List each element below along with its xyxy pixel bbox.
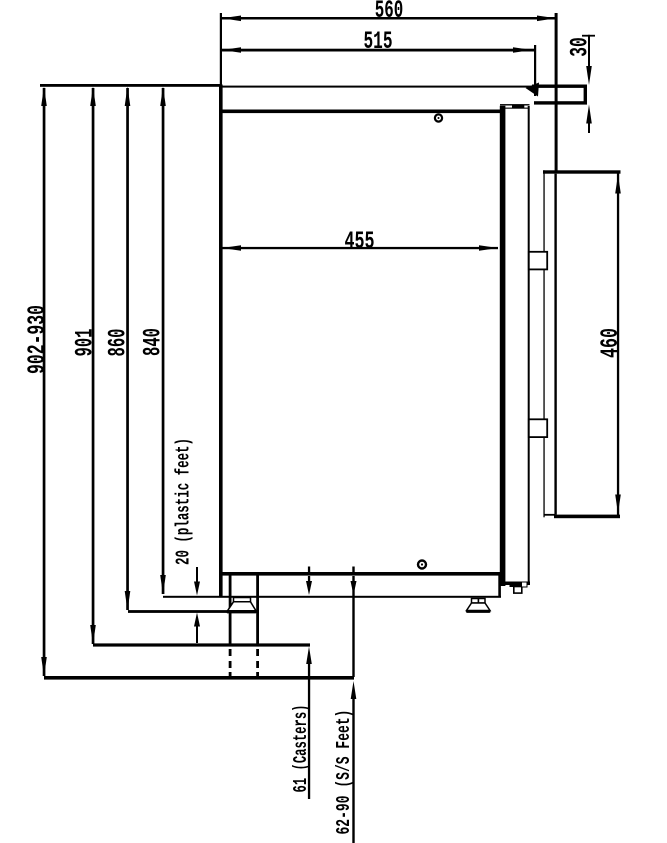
svg-text:30: 30 — [566, 37, 595, 57]
svg-text:62-90 (S/S Feet): 62-90 (S/S Feet) — [333, 710, 355, 835]
svg-text:20 (plastic feet): 20 (plastic feet) — [173, 438, 195, 565]
svg-text:455: 455 — [345, 227, 375, 256]
svg-text:901: 901 — [70, 329, 99, 357]
svg-text:460: 460 — [596, 328, 625, 358]
svg-text:61 (Casters): 61 (Casters) — [290, 705, 312, 793]
svg-text:902-930: 902-930 — [23, 305, 52, 374]
svg-text:560: 560 — [375, 0, 404, 25]
svg-text:515: 515 — [364, 27, 393, 56]
svg-text:860: 860 — [104, 329, 133, 357]
svg-text:840: 840 — [139, 328, 168, 356]
